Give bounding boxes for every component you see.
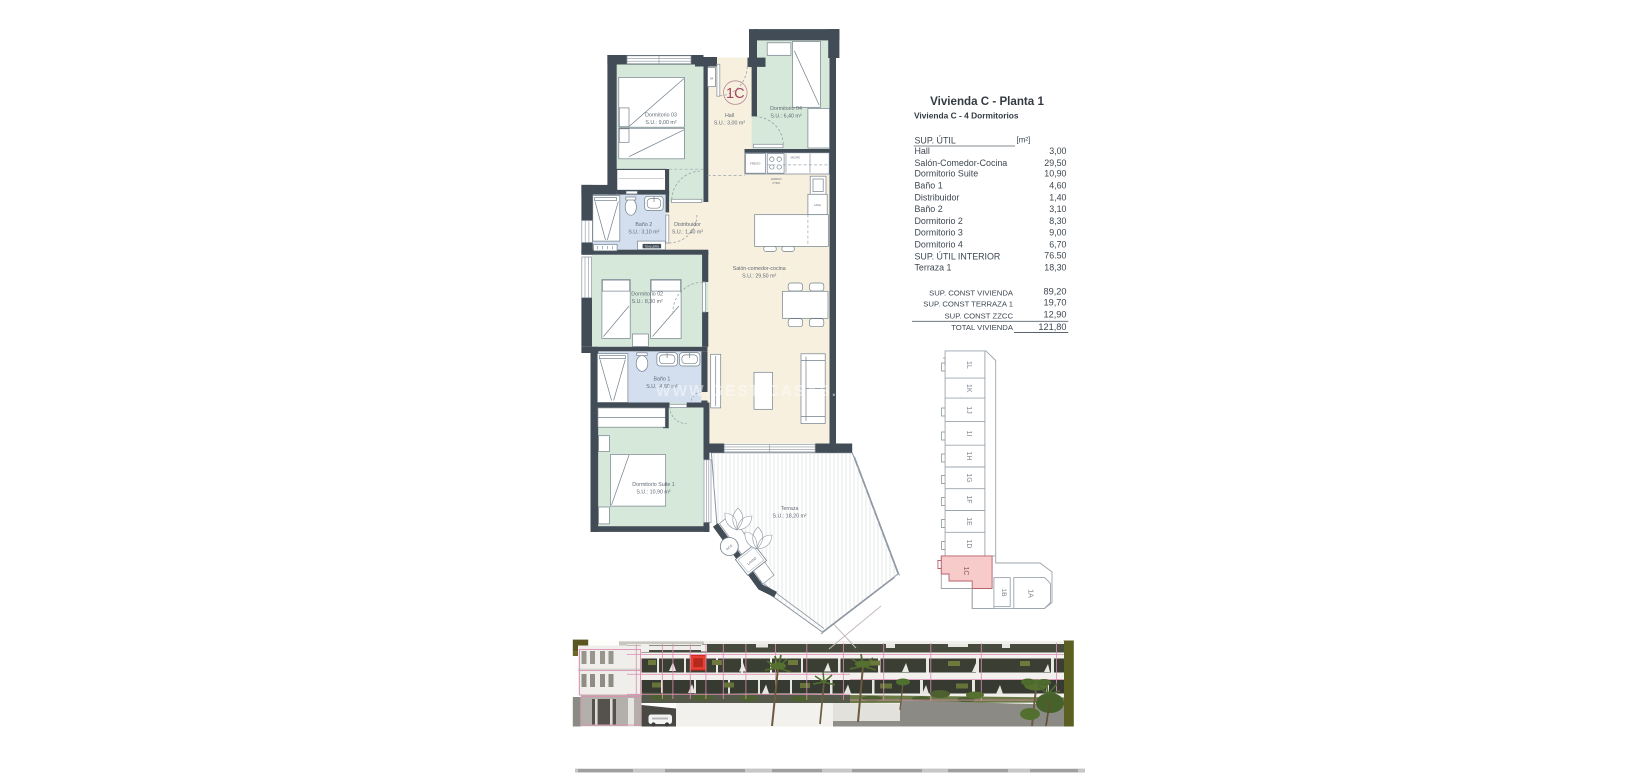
svg-text:29,50: 29,50 — [1044, 158, 1066, 168]
svg-text:1B: 1B — [1000, 588, 1007, 597]
svg-text:Dormitorio 3: Dormitorio 3 — [915, 228, 963, 238]
svg-text:1E: 1E — [965, 517, 972, 526]
svg-text:LAVA: LAVA — [814, 203, 821, 207]
svg-text:FREGO: FREGO — [750, 162, 761, 166]
svg-text:19,70: 19,70 — [1044, 298, 1067, 308]
svg-text:1K: 1K — [965, 384, 972, 393]
svg-text:Dormitorio Suite 1: Dormitorio Suite 1 — [632, 482, 674, 488]
svg-text:6,70: 6,70 — [1049, 239, 1066, 249]
svg-text:Hall: Hall — [915, 146, 930, 156]
svg-text:Baño 2: Baño 2 — [915, 204, 943, 214]
svg-text:10,90: 10,90 — [1044, 169, 1066, 179]
svg-text:S.U.: 3,00 m²: S.U.: 3,00 m² — [714, 121, 745, 127]
svg-text:Dormitorio 4: Dormitorio 4 — [915, 239, 963, 249]
svg-text:89,20: 89,20 — [1044, 286, 1067, 296]
svg-text:S.U.: 18,20 m²: S.U.: 18,20 m² — [773, 514, 807, 520]
svg-text:S.U.: 29,50 m²: S.U.: 29,50 m² — [742, 274, 776, 280]
svg-text:S.U.: 3,10 m²: S.U.: 3,10 m² — [628, 230, 659, 236]
svg-text:1G: 1G — [965, 473, 972, 482]
svg-text:1L: 1L — [965, 361, 972, 369]
svg-text:Distribuidor: Distribuidor — [915, 192, 960, 202]
svg-text:04: 04 — [710, 77, 714, 81]
svg-text:Vivienda C - 4 Dormitorios: Vivienda C - 4 Dormitorios — [914, 111, 1019, 121]
svg-text:SUP. ÚTIL INTERIOR: SUP. ÚTIL INTERIOR — [915, 251, 1001, 261]
svg-text:Dormitorio 04: Dormitorio 04 — [770, 106, 802, 112]
svg-text:8,30: 8,30 — [1049, 216, 1066, 226]
svg-text:SUP. CONST TERRAZA 1: SUP. CONST TERRAZA 1 — [923, 299, 1013, 308]
svg-text:S.U.: 9,00 m²: S.U.: 9,00 m² — [645, 120, 676, 126]
svg-text:9,00: 9,00 — [1049, 228, 1066, 238]
svg-text:S.U.: 1,40 m²: S.U.: 1,40 m² — [672, 230, 703, 236]
svg-text:Terraza 1: Terraza 1 — [915, 263, 952, 273]
svg-text:4,60: 4,60 — [1049, 181, 1066, 191]
svg-text:1I: 1I — [965, 431, 972, 437]
svg-text:1J: 1J — [965, 406, 972, 413]
svg-text:S.U.: 8,30 m²: S.U.: 8,30 m² — [632, 299, 663, 305]
svg-text:TOTAL VIVIENDA: TOTAL VIVIENDA — [951, 323, 1014, 332]
svg-text:3,10: 3,10 — [1049, 204, 1066, 214]
svg-text:Baño 1: Baño 1 — [654, 377, 671, 383]
svg-text:Dormitorio 02: Dormitorio 02 — [631, 292, 663, 298]
svg-text:SUP. ÚTIL: SUP. ÚTIL — [915, 136, 956, 146]
svg-text:1C: 1C — [726, 86, 745, 102]
svg-text:WWW.GESTICASAS.COM: WWW.GESTICASAS.COM — [656, 383, 881, 400]
svg-text:Salón-comedor-cocina: Salón-comedor-cocina — [733, 266, 786, 272]
svg-text:Terraza: Terraza — [781, 506, 799, 512]
svg-text:1C: 1C — [962, 567, 969, 576]
svg-text:76.50: 76.50 — [1044, 250, 1066, 260]
svg-text:1A: 1A — [1027, 589, 1034, 598]
svg-text:Dormitorio Suite: Dormitorio Suite — [915, 169, 979, 179]
svg-text:S.U.: 6,40 m²: S.U.: 6,40 m² — [770, 114, 801, 120]
svg-text:SUP. CONST VIVIENDA: SUP. CONST VIVIENDA — [929, 288, 1014, 297]
svg-text:1,40: 1,40 — [1049, 192, 1066, 202]
svg-text:Baño 1: Baño 1 — [915, 181, 943, 191]
svg-text:1H: 1H — [965, 452, 972, 461]
svg-text:Distribuidor: Distribuidor — [674, 222, 701, 228]
svg-text:Dormitorio 03: Dormitorio 03 — [645, 113, 677, 119]
svg-text:121,80: 121,80 — [1038, 322, 1066, 332]
svg-text:VTRO: VTRO — [772, 181, 781, 185]
svg-text:1F: 1F — [965, 495, 972, 503]
svg-text:Vivienda C - Planta 1: Vivienda C - Planta 1 — [930, 95, 1044, 108]
svg-text:SUP. CONST ZZCC: SUP. CONST ZZCC — [945, 311, 1014, 320]
svg-text:1D: 1D — [965, 540, 972, 549]
svg-text:12,90: 12,90 — [1044, 309, 1067, 319]
svg-text:[m²]: [m²] — [1017, 136, 1031, 145]
svg-text:Dormitorio 2: Dormitorio 2 — [915, 216, 963, 226]
svg-text:3,00: 3,00 — [1049, 146, 1066, 156]
svg-text:18,30: 18,30 — [1044, 263, 1066, 273]
svg-text:Salón-Comedor-Cocina: Salón-Comedor-Cocina — [915, 158, 1008, 168]
svg-text:Baño 2: Baño 2 — [635, 222, 652, 228]
svg-text:S.U.: 10,90 m²: S.U.: 10,90 m² — [636, 490, 670, 496]
svg-text:Hall: Hall — [725, 113, 734, 119]
svg-text:TOALLERO: TOALLERO — [644, 244, 660, 248]
svg-text:MICRO: MICRO — [791, 155, 801, 159]
